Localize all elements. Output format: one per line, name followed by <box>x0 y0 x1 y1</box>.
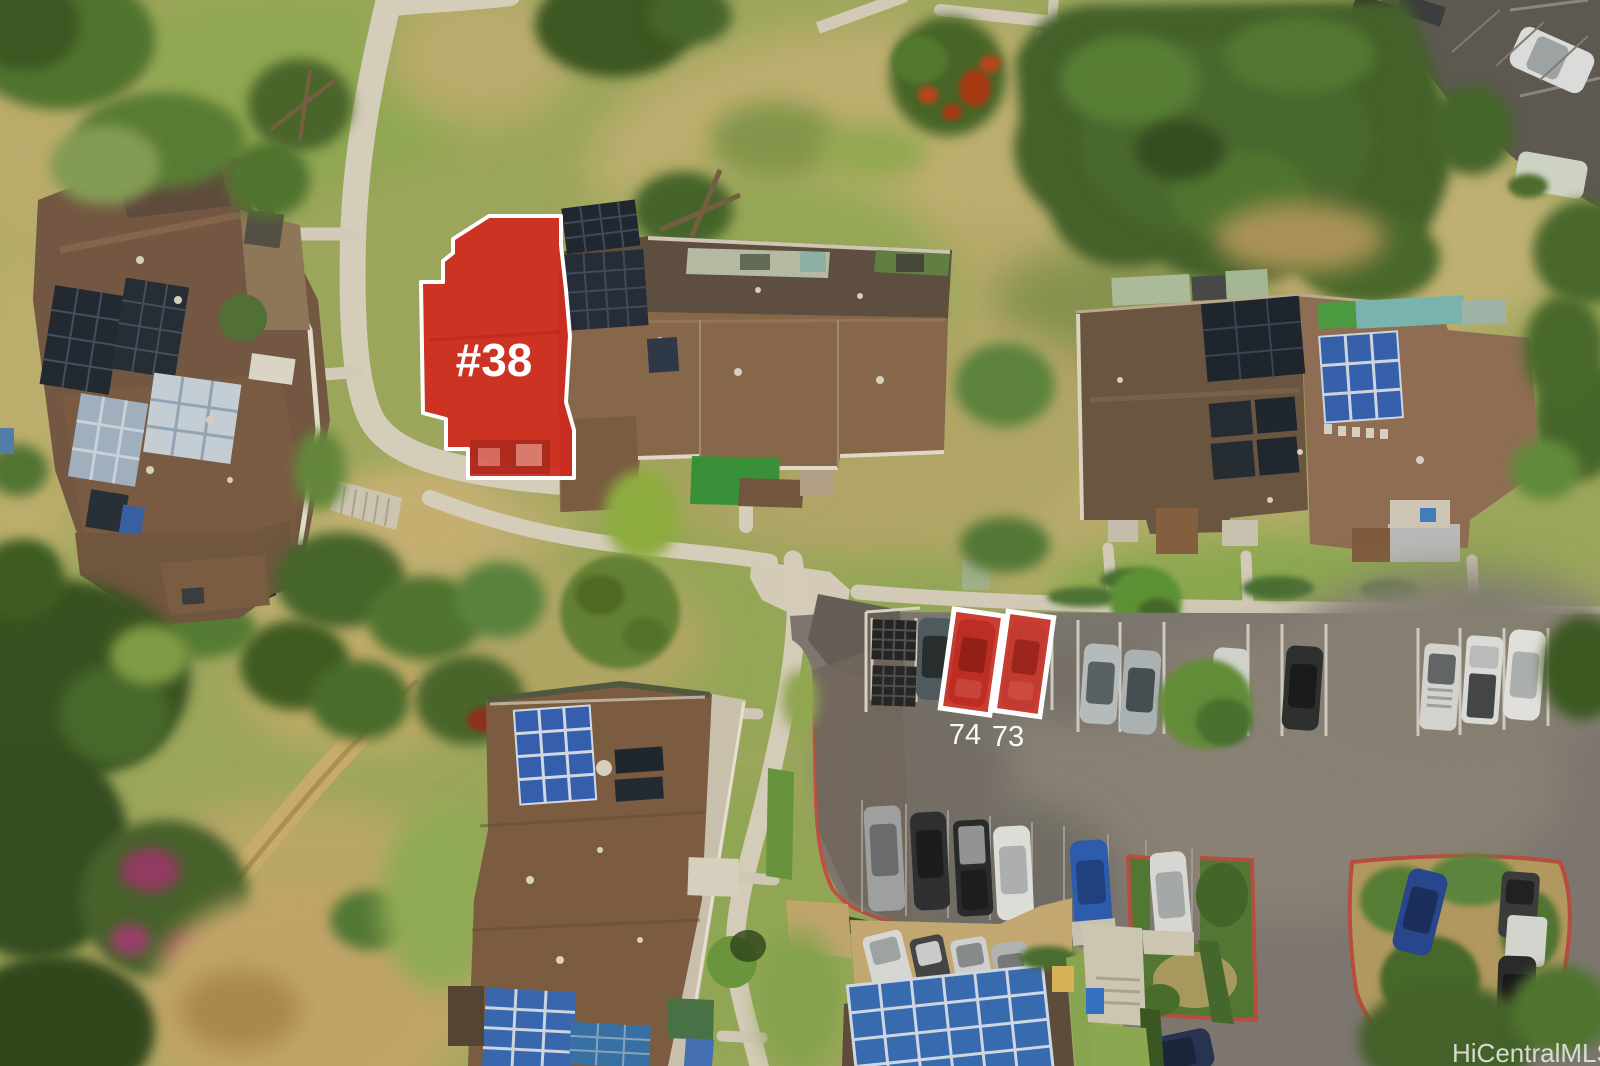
svg-text:73: 73 <box>992 721 1024 753</box>
svg-text:74: 74 <box>949 719 981 751</box>
svg-text:#38: #38 <box>456 334 533 386</box>
svg-text:HiCentralMLS: HiCentralMLS <box>1452 1038 1600 1066</box>
